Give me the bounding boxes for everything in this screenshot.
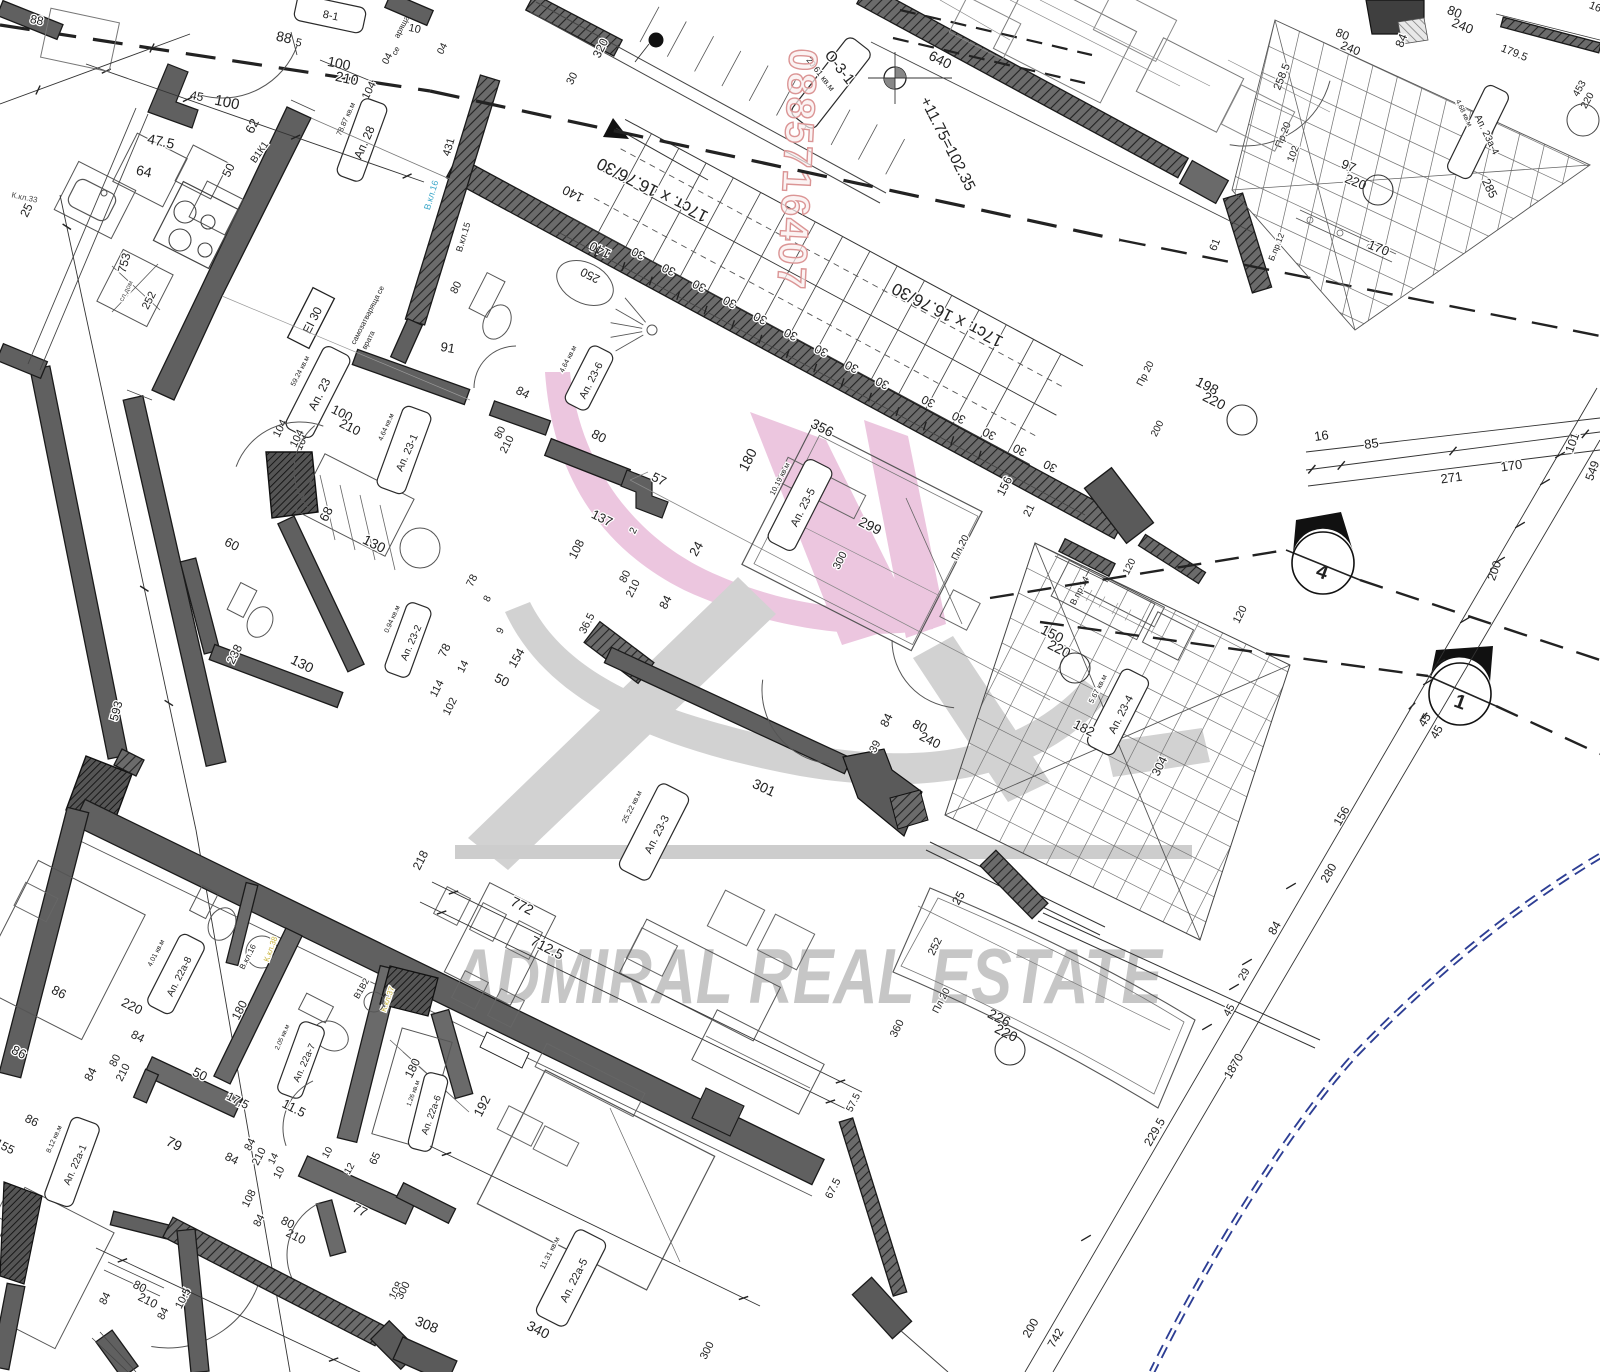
svg-text:170: 170 (1500, 457, 1524, 475)
svg-text:16: 16 (1313, 427, 1329, 444)
svg-text:91: 91 (439, 339, 456, 356)
svg-text:271: 271 (1440, 469, 1464, 487)
svg-text:85: 85 (1363, 435, 1379, 452)
svg-text:10: 10 (407, 22, 421, 36)
